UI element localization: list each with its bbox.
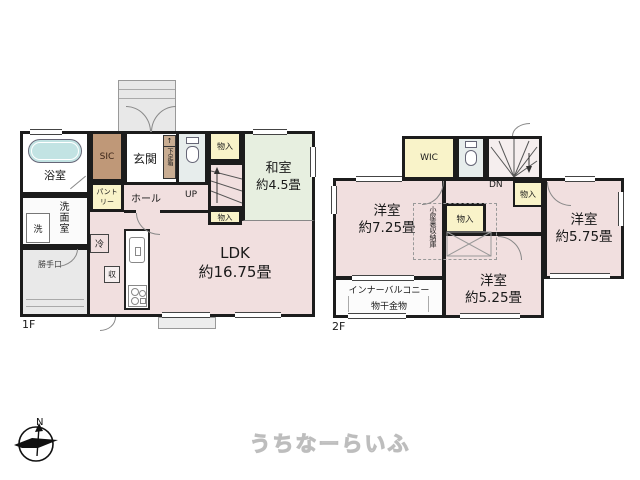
storage-1f-bottom: 物入 [208, 209, 242, 225]
exit-door-arc [100, 317, 116, 331]
washitsu-size: 約4.5畳 [256, 177, 301, 193]
south-room-size: 約5.25畳 [465, 290, 522, 307]
small-storage: 収 [104, 266, 120, 283]
hall-wall [124, 210, 136, 213]
kitchen-sink [129, 237, 145, 263]
window [30, 129, 62, 135]
stairs-lines [489, 139, 539, 177]
ldk-size: 約16.75畳 [160, 263, 310, 282]
toilet-icon [186, 137, 199, 144]
room-sic: SIC [90, 131, 124, 182]
terrace-line [26, 299, 84, 300]
shoe-box: ↑ 下足箱 [163, 135, 176, 179]
east-room-label: 洋室 約5.75畳 [555, 212, 612, 246]
washitsu-name: 和室 [256, 161, 301, 177]
window [565, 176, 595, 182]
pantry-label: パントリー [93, 187, 121, 207]
washing-machine: 洗 [26, 213, 50, 243]
window [331, 186, 337, 214]
washing-machine-label: 洗 [33, 222, 42, 235]
storage-label: 物入 [218, 212, 233, 223]
terrace-line [26, 306, 84, 307]
window [460, 313, 520, 319]
attic-ladder [446, 231, 492, 257]
stairs-2f [486, 136, 542, 180]
window [618, 192, 624, 226]
porch-step-line [119, 89, 175, 90]
porch-step-line [119, 98, 175, 99]
room-pantry: パントリー [90, 182, 124, 212]
hall-label: ホール [131, 190, 161, 205]
floorplan-image: 浴室 洗面室 洗 勝手口 SIC パントリー 玄関 ↑ 下足箱 [0, 0, 640, 480]
storage-1f-top: 物入 [208, 131, 242, 162]
compass-north-label: N [36, 417, 43, 428]
step-mark: ↑ [164, 136, 175, 147]
stairs-lines [211, 165, 242, 206]
floor2-label: 2F [332, 320, 345, 333]
washitsu-label: 和室 約4.5畳 [256, 161, 301, 193]
outside-step [158, 317, 216, 329]
storage-label: 物入 [520, 189, 536, 200]
compass-icon: N [10, 414, 64, 468]
bathtub [28, 139, 82, 163]
storage-2f-top: 物入 [513, 181, 543, 207]
east-room-name: 洋室 [555, 212, 612, 229]
sic-label: SIC [100, 152, 115, 162]
dn-label: DN [489, 180, 503, 190]
stairs-1f [208, 162, 245, 209]
south-room-name: 洋室 [465, 273, 522, 290]
room-washitsu: 和室 約4.5畳 [242, 131, 315, 221]
attic-storage-label: 小屋裏収納庫 [428, 206, 438, 258]
fridge: 冷 [90, 234, 109, 253]
room-wic: WIC [402, 136, 456, 180]
window [348, 313, 406, 319]
up-label: UP [185, 190, 197, 200]
floor1-label: 1F [22, 318, 35, 331]
window [310, 147, 316, 177]
balcony-label: インナーバルコニー [333, 283, 445, 296]
window [162, 312, 210, 318]
toilet-icon [465, 150, 477, 166]
window [253, 129, 287, 135]
window [356, 176, 402, 182]
fridge-label: 冷 [95, 237, 104, 250]
toilet-icon [465, 141, 477, 148]
window [235, 312, 281, 318]
window [550, 273, 610, 279]
washroom-label: 洗面室 [55, 201, 70, 245]
storage-label: 物入 [217, 141, 233, 152]
wic-label: WIC [420, 153, 438, 163]
south-room-label: 洋室 約5.25畳 [465, 273, 522, 307]
toilet-icon [186, 146, 199, 163]
hall-wall [160, 210, 208, 213]
shoe-box-label: 下足箱 [165, 148, 174, 166]
company-logo: うちなーらいふ [240, 428, 420, 458]
window [352, 275, 414, 281]
small-storage-label: 収 [108, 269, 116, 280]
ldk-name: LDK [160, 244, 310, 263]
east-room-size: 約5.75畳 [555, 229, 612, 246]
kitchen-stove [128, 285, 147, 307]
balcony-line [428, 296, 429, 312]
balcony-line [348, 296, 349, 312]
stairs-door-arc [512, 123, 530, 136]
ldk-label: LDK 約16.75畳 [160, 244, 310, 282]
